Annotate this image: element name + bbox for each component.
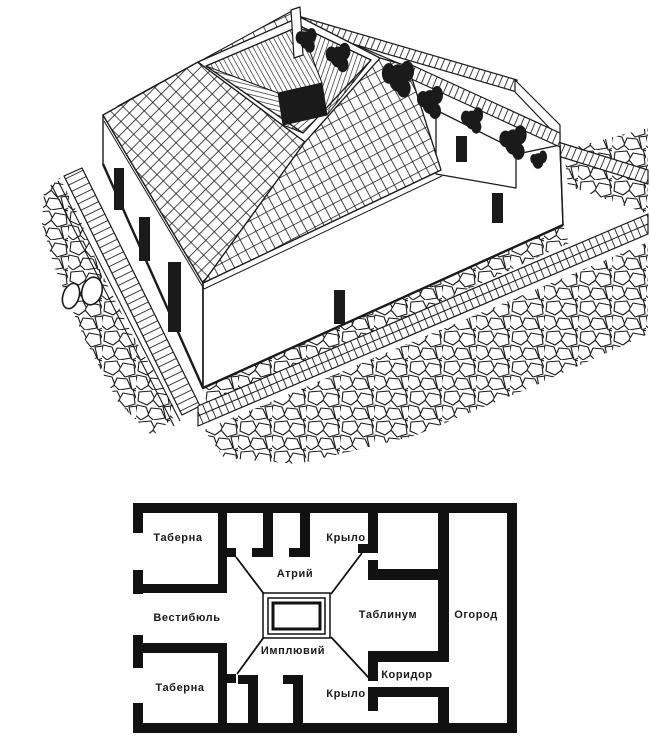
cubiculum-wall <box>293 675 303 723</box>
room-label-taberna-bottom: Таберна <box>155 682 204 694</box>
outer-wall-left-seg <box>133 503 143 533</box>
atrium-corner-stub <box>227 674 236 683</box>
window-slit <box>334 290 345 324</box>
outer-wall-left-seg <box>133 635 143 668</box>
taberna-top-south-wall <box>143 584 227 593</box>
figure-roman-domus: Таберна Крыло Атрий Вестибюль Таблинум О… <box>0 0 650 749</box>
room-label-atrium: Атрий <box>277 568 313 580</box>
outer-wall-right <box>507 503 517 733</box>
corridor-jamb <box>368 662 378 681</box>
corridor-south-wall <box>368 687 449 697</box>
taberna-bottom-north-wall <box>143 643 227 653</box>
room-label-tablinum: Таблинум <box>359 609 417 621</box>
garden-partition-wall <box>438 503 449 662</box>
room-label-vestibule: Вестибюль <box>153 612 220 624</box>
northeast-room-door-jamb <box>358 544 368 553</box>
northeast-room-door-jamb <box>368 560 378 569</box>
room-label-impluvium: Имплювий <box>261 645 325 657</box>
cubiculum-door-jamb <box>289 548 300 557</box>
room-label-ala-top: Крыло <box>326 532 365 544</box>
book-figure-page: Таберна Крыло Атрий Вестибюль Таблинум О… <box>0 0 650 749</box>
outer-wall-left-seg <box>133 703 143 733</box>
outer-wall-top <box>133 503 517 513</box>
northeast-room-west-wall <box>368 503 378 553</box>
cubiculum-wall <box>300 513 310 557</box>
room-label-ala-bottom: Крыло <box>326 688 365 700</box>
outer-wall-left-seg <box>133 570 143 594</box>
cubiculum-wall <box>263 513 273 557</box>
window-slit <box>139 217 150 261</box>
atrium-corner-stub <box>227 548 236 557</box>
cubiculum-door-jamb <box>238 675 248 684</box>
room-label-corridor: Коридор <box>381 669 433 681</box>
corridor-north-wall <box>368 651 449 662</box>
taberna-bottom-east-wall <box>218 643 227 733</box>
room-label-garden: Огород <box>454 609 498 621</box>
floor-plan: Таберна Крыло Атрий Вестибюль Таблинум О… <box>133 503 517 733</box>
room-label-taberna-top: Таберна <box>153 532 202 544</box>
window-slit <box>168 262 181 332</box>
cubiculum-wall <box>248 675 258 723</box>
house-illustration <box>42 7 648 464</box>
window-slit <box>114 168 124 210</box>
window-slit <box>456 136 467 162</box>
southeast-room-west-wall <box>368 697 378 711</box>
taberna-top-east-wall <box>218 503 227 593</box>
window-slit <box>492 193 503 223</box>
cubiculum-door-jamb <box>252 548 263 557</box>
northeast-room-south-wall <box>368 569 449 580</box>
outer-wall-bottom <box>133 723 517 733</box>
impluvium-basin <box>263 593 330 638</box>
cubiculum-door-jamb <box>283 675 293 684</box>
